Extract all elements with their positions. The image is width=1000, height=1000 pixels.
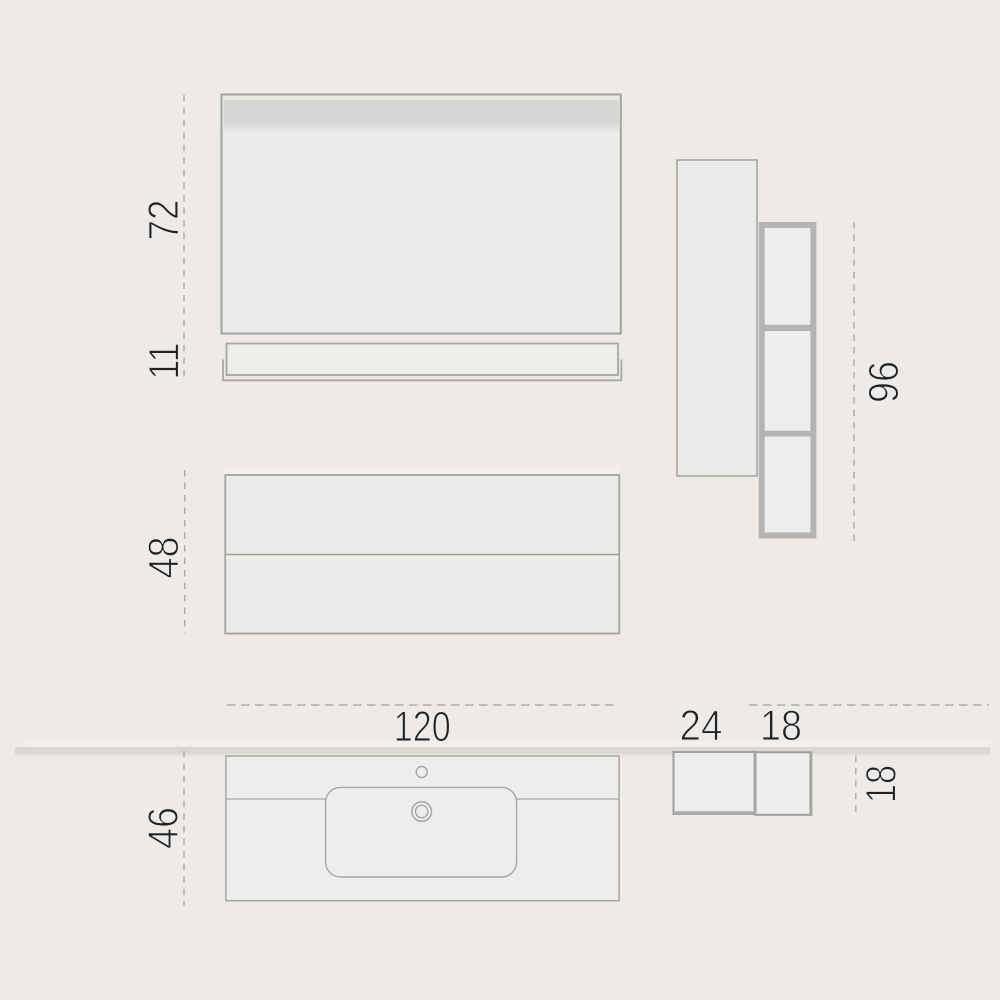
svg-text:96: 96 [860, 361, 908, 403]
svg-text:48: 48 [140, 537, 188, 579]
svg-text:72: 72 [140, 200, 188, 241]
svg-text:11: 11 [141, 343, 189, 380]
svg-text:18: 18 [858, 765, 906, 803]
svg-text:46: 46 [140, 807, 188, 849]
